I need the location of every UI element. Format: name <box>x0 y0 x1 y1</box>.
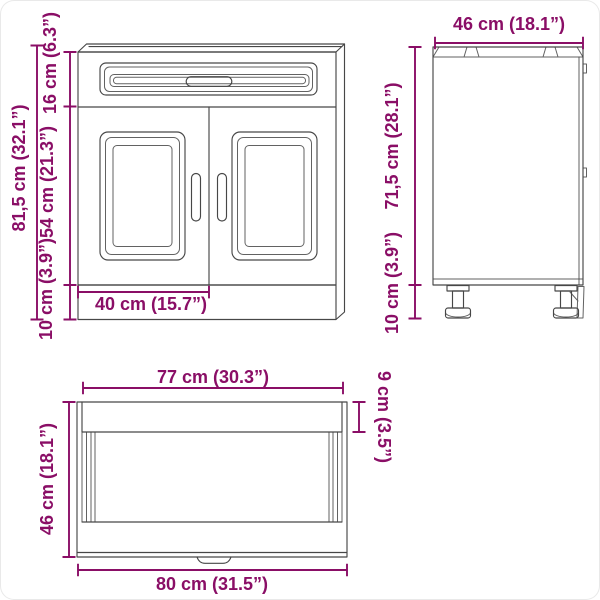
left-door-handle <box>192 174 201 222</box>
front-side-sliver <box>336 44 345 320</box>
front-view-drawing <box>78 44 345 320</box>
top-back-rail <box>82 402 342 432</box>
drawer-front <box>100 63 317 95</box>
diagram-canvas: 81,5 cm (32.1”) 16 cm (6.3”) 54 cm (21.3… <box>0 0 600 600</box>
drawer-handle <box>186 77 232 87</box>
dim-top-inner-width: 77 cm (30.3”) <box>157 367 269 387</box>
left-door <box>100 132 201 260</box>
side-left-foot <box>446 286 471 319</box>
side-body <box>433 47 583 285</box>
dim-front-door-width: 40 cm (15.7”) <box>95 294 207 314</box>
dim-side-leg-height: 10 cm (3.9”) <box>382 232 402 334</box>
top-left-side-panel <box>82 432 95 522</box>
dim-top-total-width: 80 cm (31.5”) <box>156 574 268 594</box>
top-front-band <box>77 522 347 553</box>
dim-front-bottom-section: 10 cm (3.9”) <box>36 238 56 340</box>
cabinet-dimension-diagram: 81,5 cm (32.1”) 16 cm (6.3”) 54 cm (21.3… <box>0 0 600 600</box>
right-door <box>218 132 318 260</box>
front-top-edge <box>78 44 345 52</box>
dim-front-middle-section: 54 cm (21.3”) <box>37 126 57 238</box>
top-view-drawing <box>77 402 347 563</box>
side-top-edge <box>433 47 583 57</box>
dim-front-total-height: 81,5 cm (32.1”) <box>9 104 29 231</box>
side-right-foot <box>554 286 585 319</box>
side-view-drawing <box>433 47 587 318</box>
top-front-handle <box>197 557 231 563</box>
dim-side-body-height: 71,5 cm (28.1”) <box>382 82 402 209</box>
dim-front-top-section: 16 cm (6.3”) <box>40 12 60 114</box>
top-outline <box>77 402 347 557</box>
dim-top-front-rail-depth: 9 cm (3.5”) <box>374 371 394 463</box>
side-view-dimension-lines <box>409 37 584 319</box>
right-door-handle <box>218 174 227 222</box>
dim-top-depth: 46 cm (18.1”) <box>37 423 57 535</box>
dim-side-depth: 46 cm (18.1”) <box>453 14 565 34</box>
top-right-side-panel <box>329 432 342 522</box>
top-view-dimension-lines <box>63 382 366 577</box>
